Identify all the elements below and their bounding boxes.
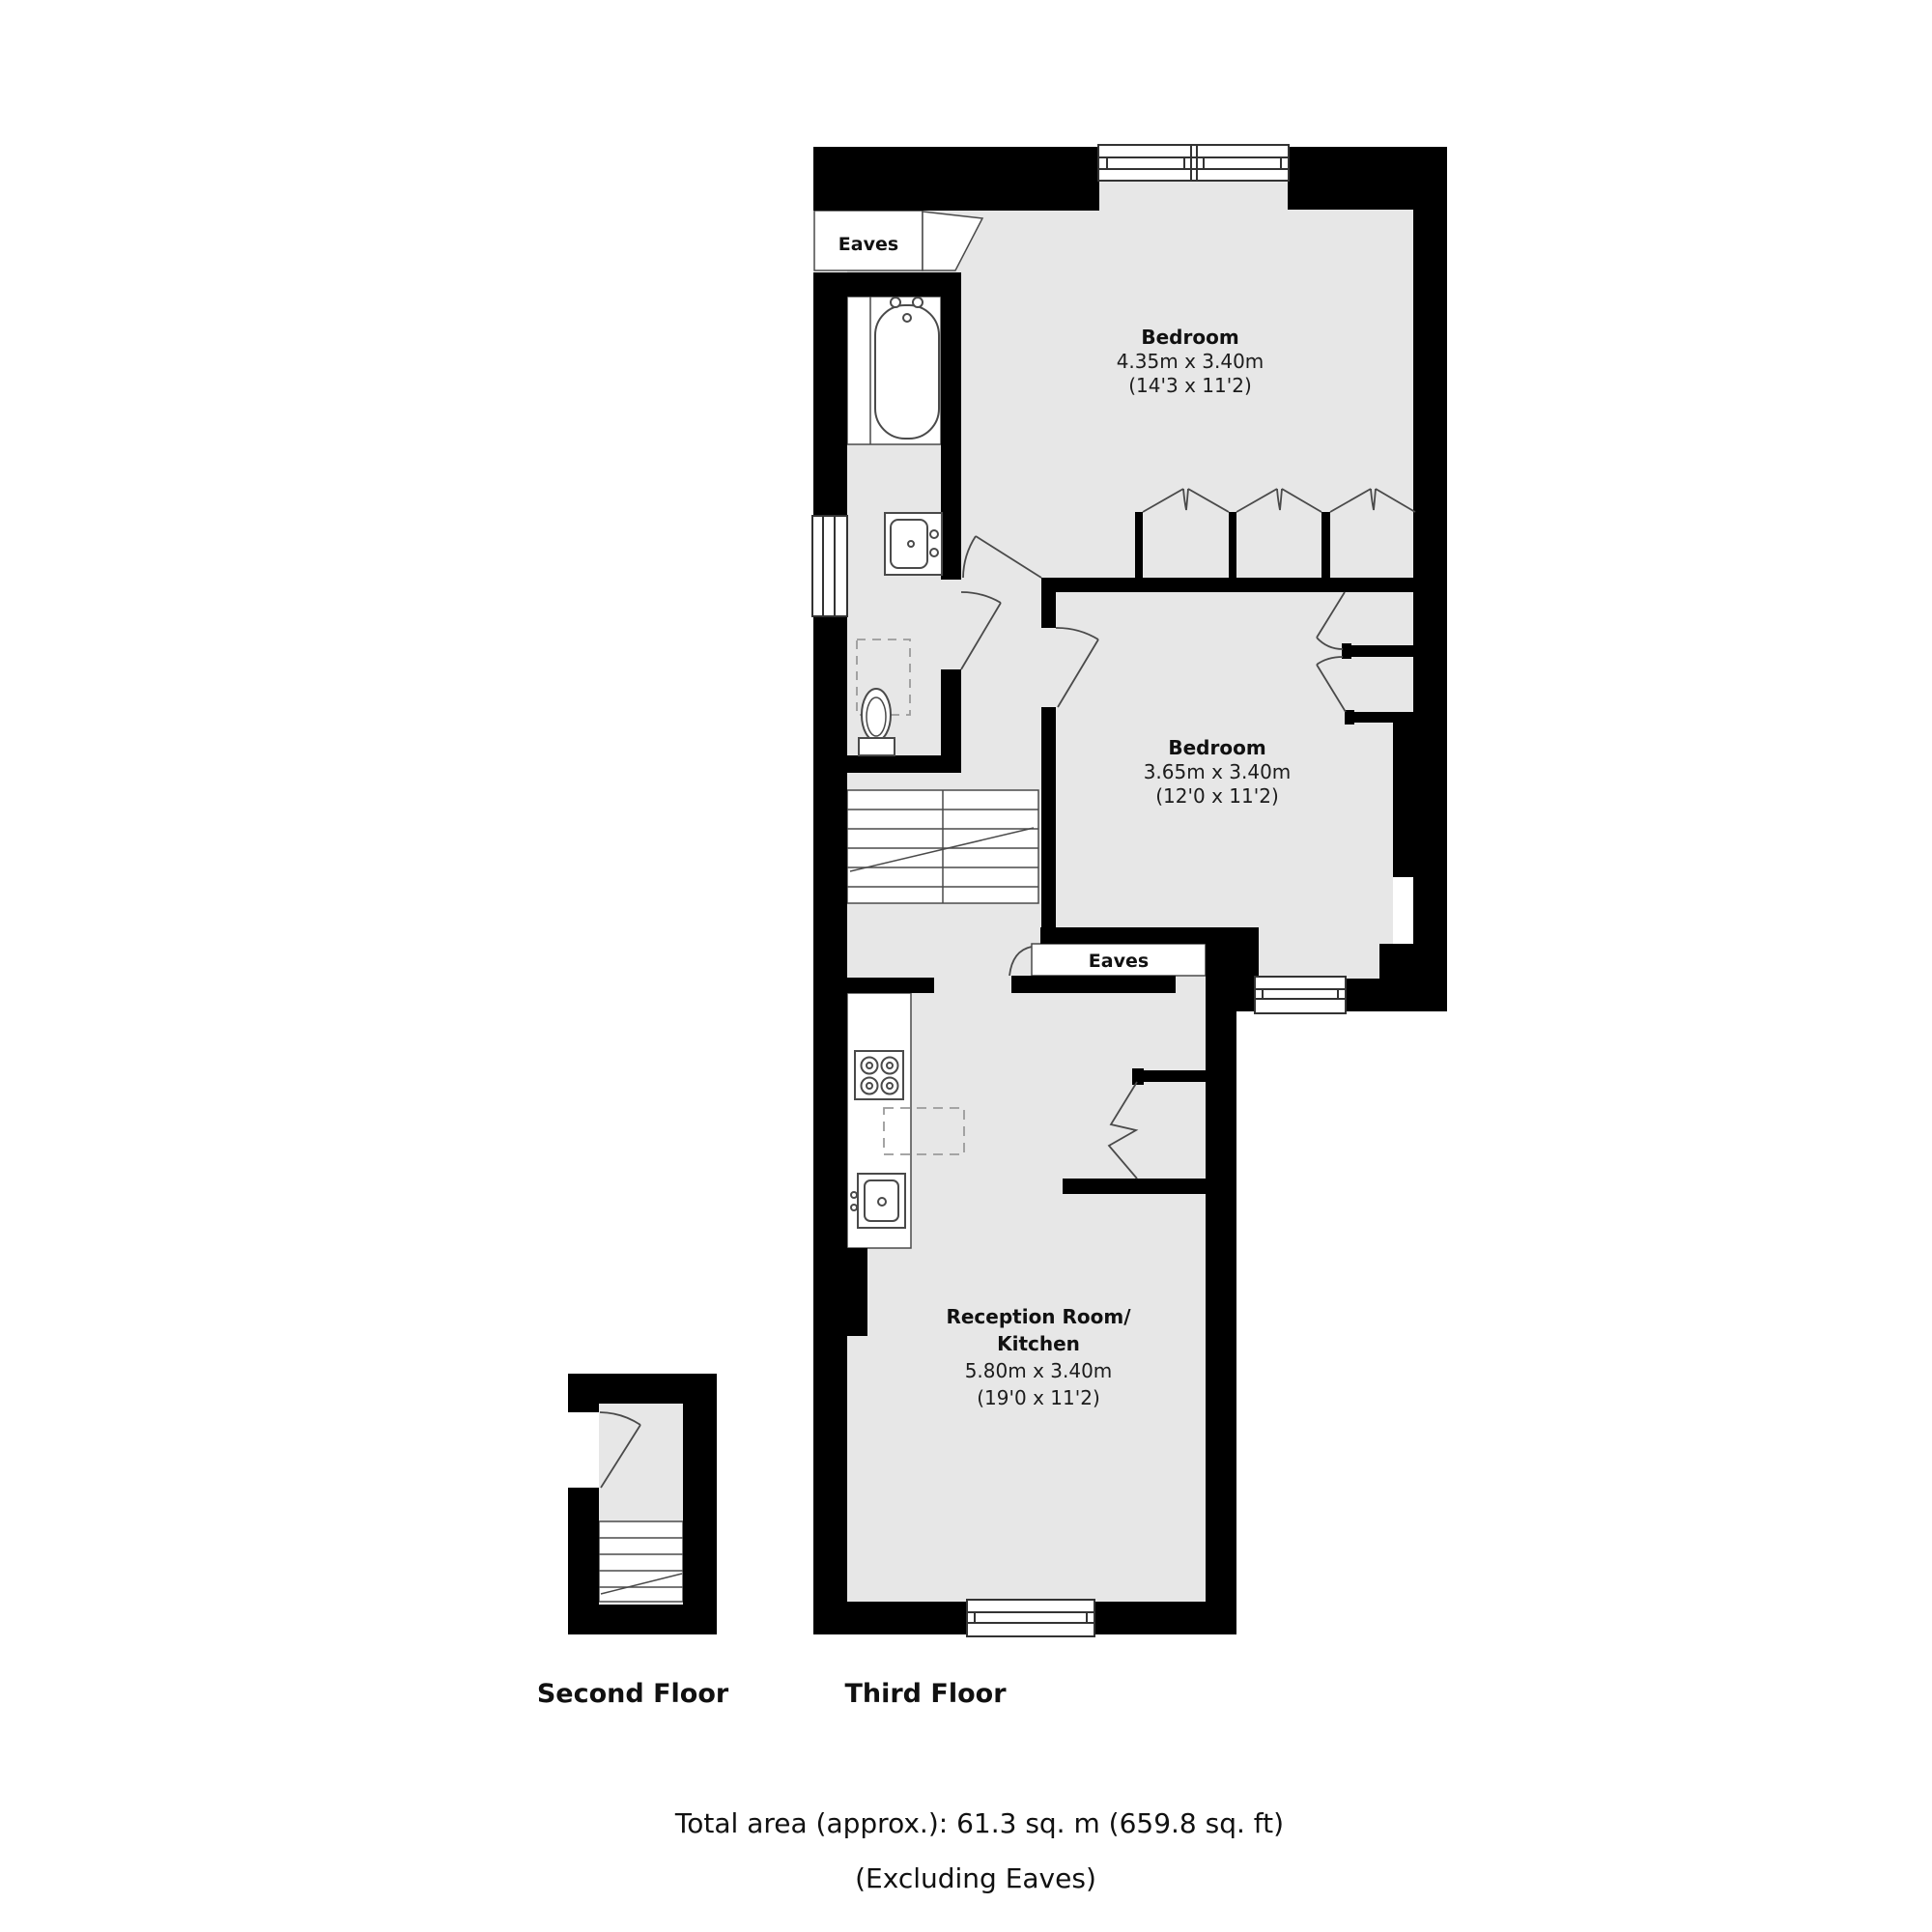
staircase-second-floor-area — [599, 1521, 683, 1602]
svg-text:3.65m x 3.40m: 3.65m x 3.40m — [1144, 760, 1292, 783]
svg-text:Bedroom: Bedroom — [1168, 736, 1265, 759]
svg-text:(14'3 x 11'2): (14'3 x 11'2) — [1128, 374, 1252, 397]
total-area-text: Total area (approx.): 61.3 sq. m (659.8 … — [674, 1807, 1284, 1839]
wall-recess — [1393, 877, 1413, 944]
svg-text:Bedroom: Bedroom — [1141, 326, 1238, 349]
window — [967, 1600, 1094, 1636]
bathroom-sink-icon — [885, 513, 942, 575]
window — [1255, 977, 1346, 1013]
svg-text:Reception Room/: Reception Room/ — [946, 1305, 1131, 1328]
svg-text:Kitchen: Kitchen — [997, 1332, 1080, 1355]
svg-text:4.35m x 3.40m: 4.35m x 3.40m — [1117, 350, 1264, 373]
floorplan-page: Eaves Eaves Bedroom 4.35m x 3.40m (14'3 … — [0, 0, 1932, 1932]
window — [1098, 145, 1289, 181]
bathtub-icon — [870, 297, 939, 444]
floorplan-drawing: Eaves Eaves Bedroom 4.35m x 3.40m (14'3 … — [0, 0, 1932, 1932]
window — [812, 516, 847, 616]
third-floor-title: Third Floor — [844, 1679, 1007, 1709]
svg-text:5.80m x 3.40m: 5.80m x 3.40m — [965, 1359, 1113, 1382]
eaves-label: Eaves — [1089, 951, 1149, 972]
eaves-label: Eaves — [838, 234, 898, 255]
svg-text:(12'0 x 11'2): (12'0 x 11'2) — [1155, 784, 1279, 808]
hob-icon — [855, 1051, 903, 1099]
second-floor-title: Second Floor — [537, 1679, 729, 1709]
kitchen-sink-icon — [851, 1174, 905, 1228]
svg-text:(19'0 x 11'2): (19'0 x 11'2) — [977, 1386, 1100, 1409]
excluding-eaves-text: (Excluding Eaves) — [855, 1862, 1096, 1894]
